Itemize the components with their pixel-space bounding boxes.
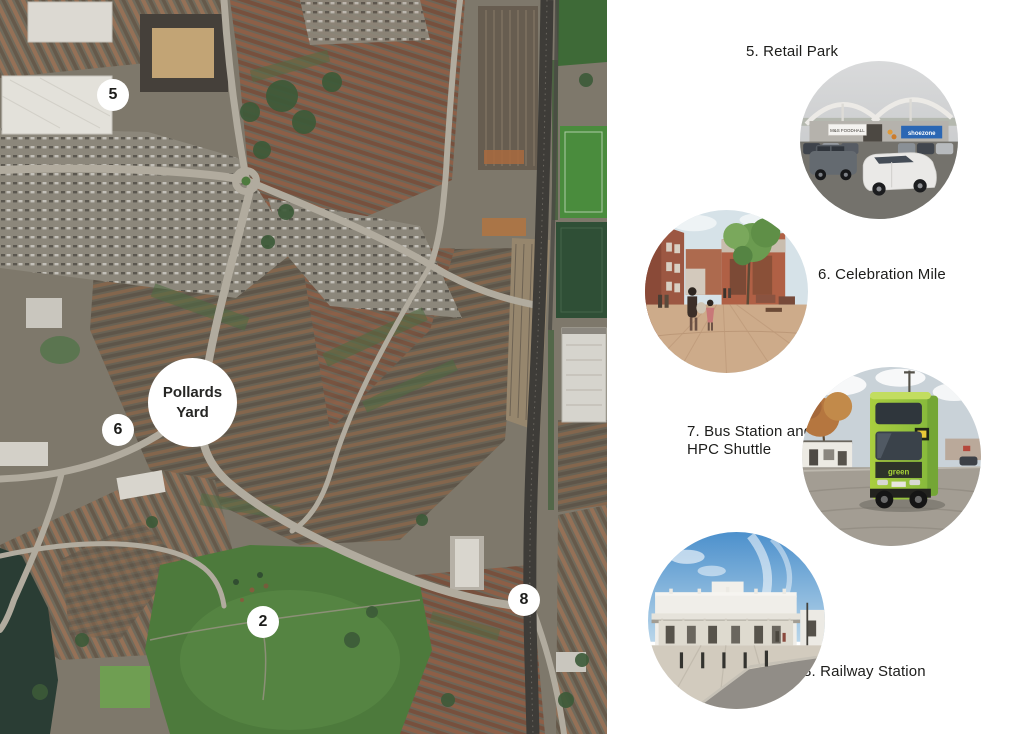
roundabout-centre [242,177,251,186]
aerial-map-image [0,0,607,734]
retail-park-photo: M&S FOODHALL shoezone [800,61,958,219]
pedestrian [775,631,779,642]
foodhall-sign-text: M&S FOODHALL [830,128,865,133]
bus-label-line2: HPC Shuttle [687,441,812,459]
legend-label-retail-park: 5. Retail Park [746,43,838,60]
map-marker-8-number: 8 [520,591,529,609]
aerial-map: 5 6 2 8 Pollards Yard [0,0,607,734]
legend-label-celebration-mile: 6. Celebration Mile [818,266,946,283]
white-hatchback [863,153,936,196]
map-marker-8: 8 [508,584,540,616]
railway-station-photo [648,532,825,709]
station-building [802,440,852,467]
pedestrian [783,633,786,642]
celebration-mile-photo [645,210,808,373]
bus-label-line1: 7. Bus Station and [687,423,812,441]
pollards-yard-site-label: Pollards Yard [148,358,237,447]
parked-car [960,457,978,466]
double-decker-bus: green [870,392,938,508]
bus-illustration: green [802,367,981,546]
celebration-mile-illustration [645,210,808,373]
bus-brand-text: green [888,467,910,476]
site-label-line1: Pollards [163,383,222,403]
map-marker-2: 2 [247,606,279,638]
map-marker-6: 6 [102,414,134,446]
site-label-line2: Yard [176,403,209,423]
legend-label-railway-station: 8. Railway Station [803,663,926,680]
retail-park-illustration: M&S FOODHALL shoezone [800,61,958,219]
map-marker-6-number: 6 [114,421,123,439]
brochure-page: 5 6 2 8 Pollards Yard 5. Retail Park [0,0,1024,734]
map-marker-5-number: 5 [109,86,118,104]
map-marker-2-number: 2 [259,613,268,631]
railway-station-illustration [648,532,825,709]
legend-label-bus-station: 7. Bus Station and HPC Shuttle [687,423,812,459]
bus-station-photo: green [802,367,981,546]
shoezone-sign-text: shoezone [908,131,936,137]
map-marker-5: 5 [97,79,129,111]
